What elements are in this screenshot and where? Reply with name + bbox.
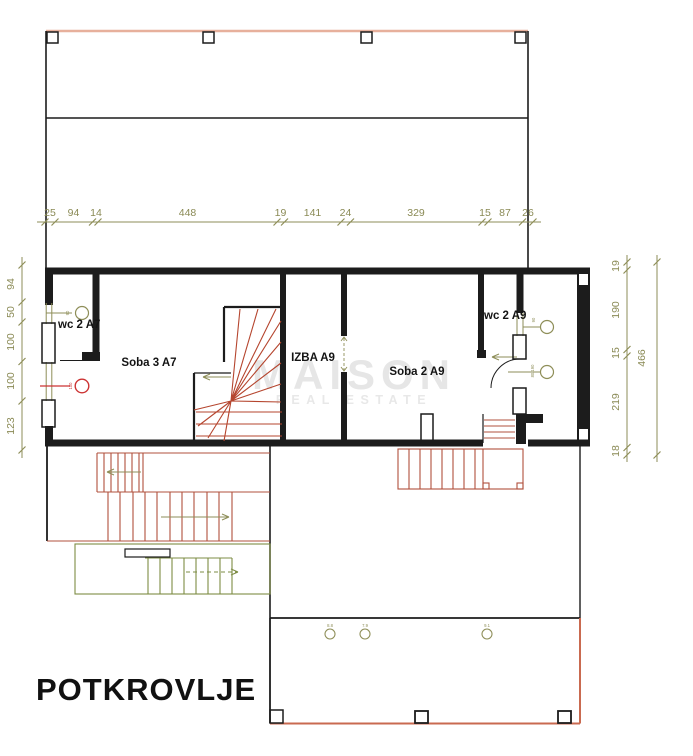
vent-circle-icon xyxy=(541,366,554,379)
dim-right-total: 466 xyxy=(636,349,648,367)
room-label-soba3: Soba 3 A7 xyxy=(121,357,176,369)
vent-circle-icon xyxy=(541,321,554,334)
dim-top-0: 25 xyxy=(44,207,56,219)
flight-a-arrow xyxy=(107,469,141,475)
window-box xyxy=(513,335,526,359)
dim-left-4: 123 xyxy=(5,417,17,435)
green-treads xyxy=(148,558,232,594)
right-wall xyxy=(577,268,590,446)
room-label-wc-left: wc 2 A7 xyxy=(57,319,100,331)
window-box xyxy=(42,323,55,363)
dim-top-7: 329 xyxy=(407,207,425,219)
dim-left-2: 100 xyxy=(5,333,17,351)
vent-circle-icon xyxy=(482,629,492,639)
dim-top-10: 26 xyxy=(522,207,534,219)
floor-plan-page: MAISON REAL ESTATE 25 94 14 448 19 141 2… xyxy=(0,0,693,756)
vent-circle-icon xyxy=(360,629,370,639)
dim-top-8: 15 xyxy=(479,207,491,219)
wc-right-fixtures: 90 80/190 xyxy=(508,317,554,378)
door-swing-arc xyxy=(491,359,520,388)
wall-pier xyxy=(421,414,433,443)
dim-left-3: 100 xyxy=(5,372,17,390)
door-leaf xyxy=(513,388,526,414)
dim-left-1: 50 xyxy=(5,306,17,318)
right-dimension-chains: 19 190 15 219 18 466 xyxy=(610,255,661,462)
dim-right-1: 190 xyxy=(610,301,622,319)
roof-outline xyxy=(46,31,528,268)
dim-right-4: 18 xyxy=(610,445,622,457)
stairwell-green-flight xyxy=(75,544,270,594)
watermark-tagline: REAL ESTATE xyxy=(276,393,432,407)
dim-top-2: 14 xyxy=(90,207,102,219)
room-label-soba2: Soba 2 A9 xyxy=(389,366,444,378)
lower-right-staircase xyxy=(398,414,523,489)
floor-plan-drawing: MAISON REAL ESTATE 25 94 14 448 19 141 2… xyxy=(0,0,693,756)
fixture-label: 80/190 xyxy=(530,364,535,377)
vent-circle-icon xyxy=(75,379,89,393)
green-dashed-arrow xyxy=(186,569,238,575)
terrace-label-1: 7.9 xyxy=(362,623,368,628)
fixture-label: 100 xyxy=(68,382,73,390)
vent-circle-icon xyxy=(76,307,89,320)
dim-right-2: 15 xyxy=(610,347,622,359)
terrace-column xyxy=(415,711,428,723)
stair-direction-arrow xyxy=(203,374,231,380)
terrace: 8.8 7.9 9.1 xyxy=(270,446,580,724)
terrace-label-0: 8.8 xyxy=(327,623,333,628)
dim-right-0: 19 xyxy=(610,260,622,272)
dim-top-4: 19 xyxy=(275,207,287,219)
fixture-label: 90 xyxy=(65,310,70,315)
stairwell-red-flights xyxy=(47,446,270,618)
dim-top-9: 87 xyxy=(499,207,511,219)
dim-top-5: 141 xyxy=(304,207,322,219)
plan-title: POTKROVLJE xyxy=(36,672,256,707)
fixture-label: 90 xyxy=(531,317,536,322)
stair-treads xyxy=(409,449,475,489)
corner-column xyxy=(270,710,283,723)
terrace-label-2: 9.1 xyxy=(484,623,490,628)
terrace-column xyxy=(558,711,571,723)
top-dimension-chain: 25 94 14 448 19 141 24 329 15 87 26 xyxy=(37,207,541,226)
landing-step xyxy=(125,549,170,557)
dim-top-3: 448 xyxy=(179,207,197,219)
room-label-izba: IZBA A9 xyxy=(291,352,335,364)
left-wall-windows xyxy=(42,303,55,427)
left-dimension-chain: 94 50 100 100 123 xyxy=(5,257,26,458)
roof-column-markers xyxy=(47,32,526,43)
dim-right-3: 219 xyxy=(610,393,622,411)
dim-top-1: 94 xyxy=(68,207,80,219)
dim-top-6: 24 xyxy=(340,207,352,219)
room-label-wc-right: wc 2 A9 xyxy=(483,310,526,322)
dim-left-0: 94 xyxy=(5,278,17,290)
vent-circle-icon xyxy=(325,629,335,639)
window-box xyxy=(42,400,55,427)
